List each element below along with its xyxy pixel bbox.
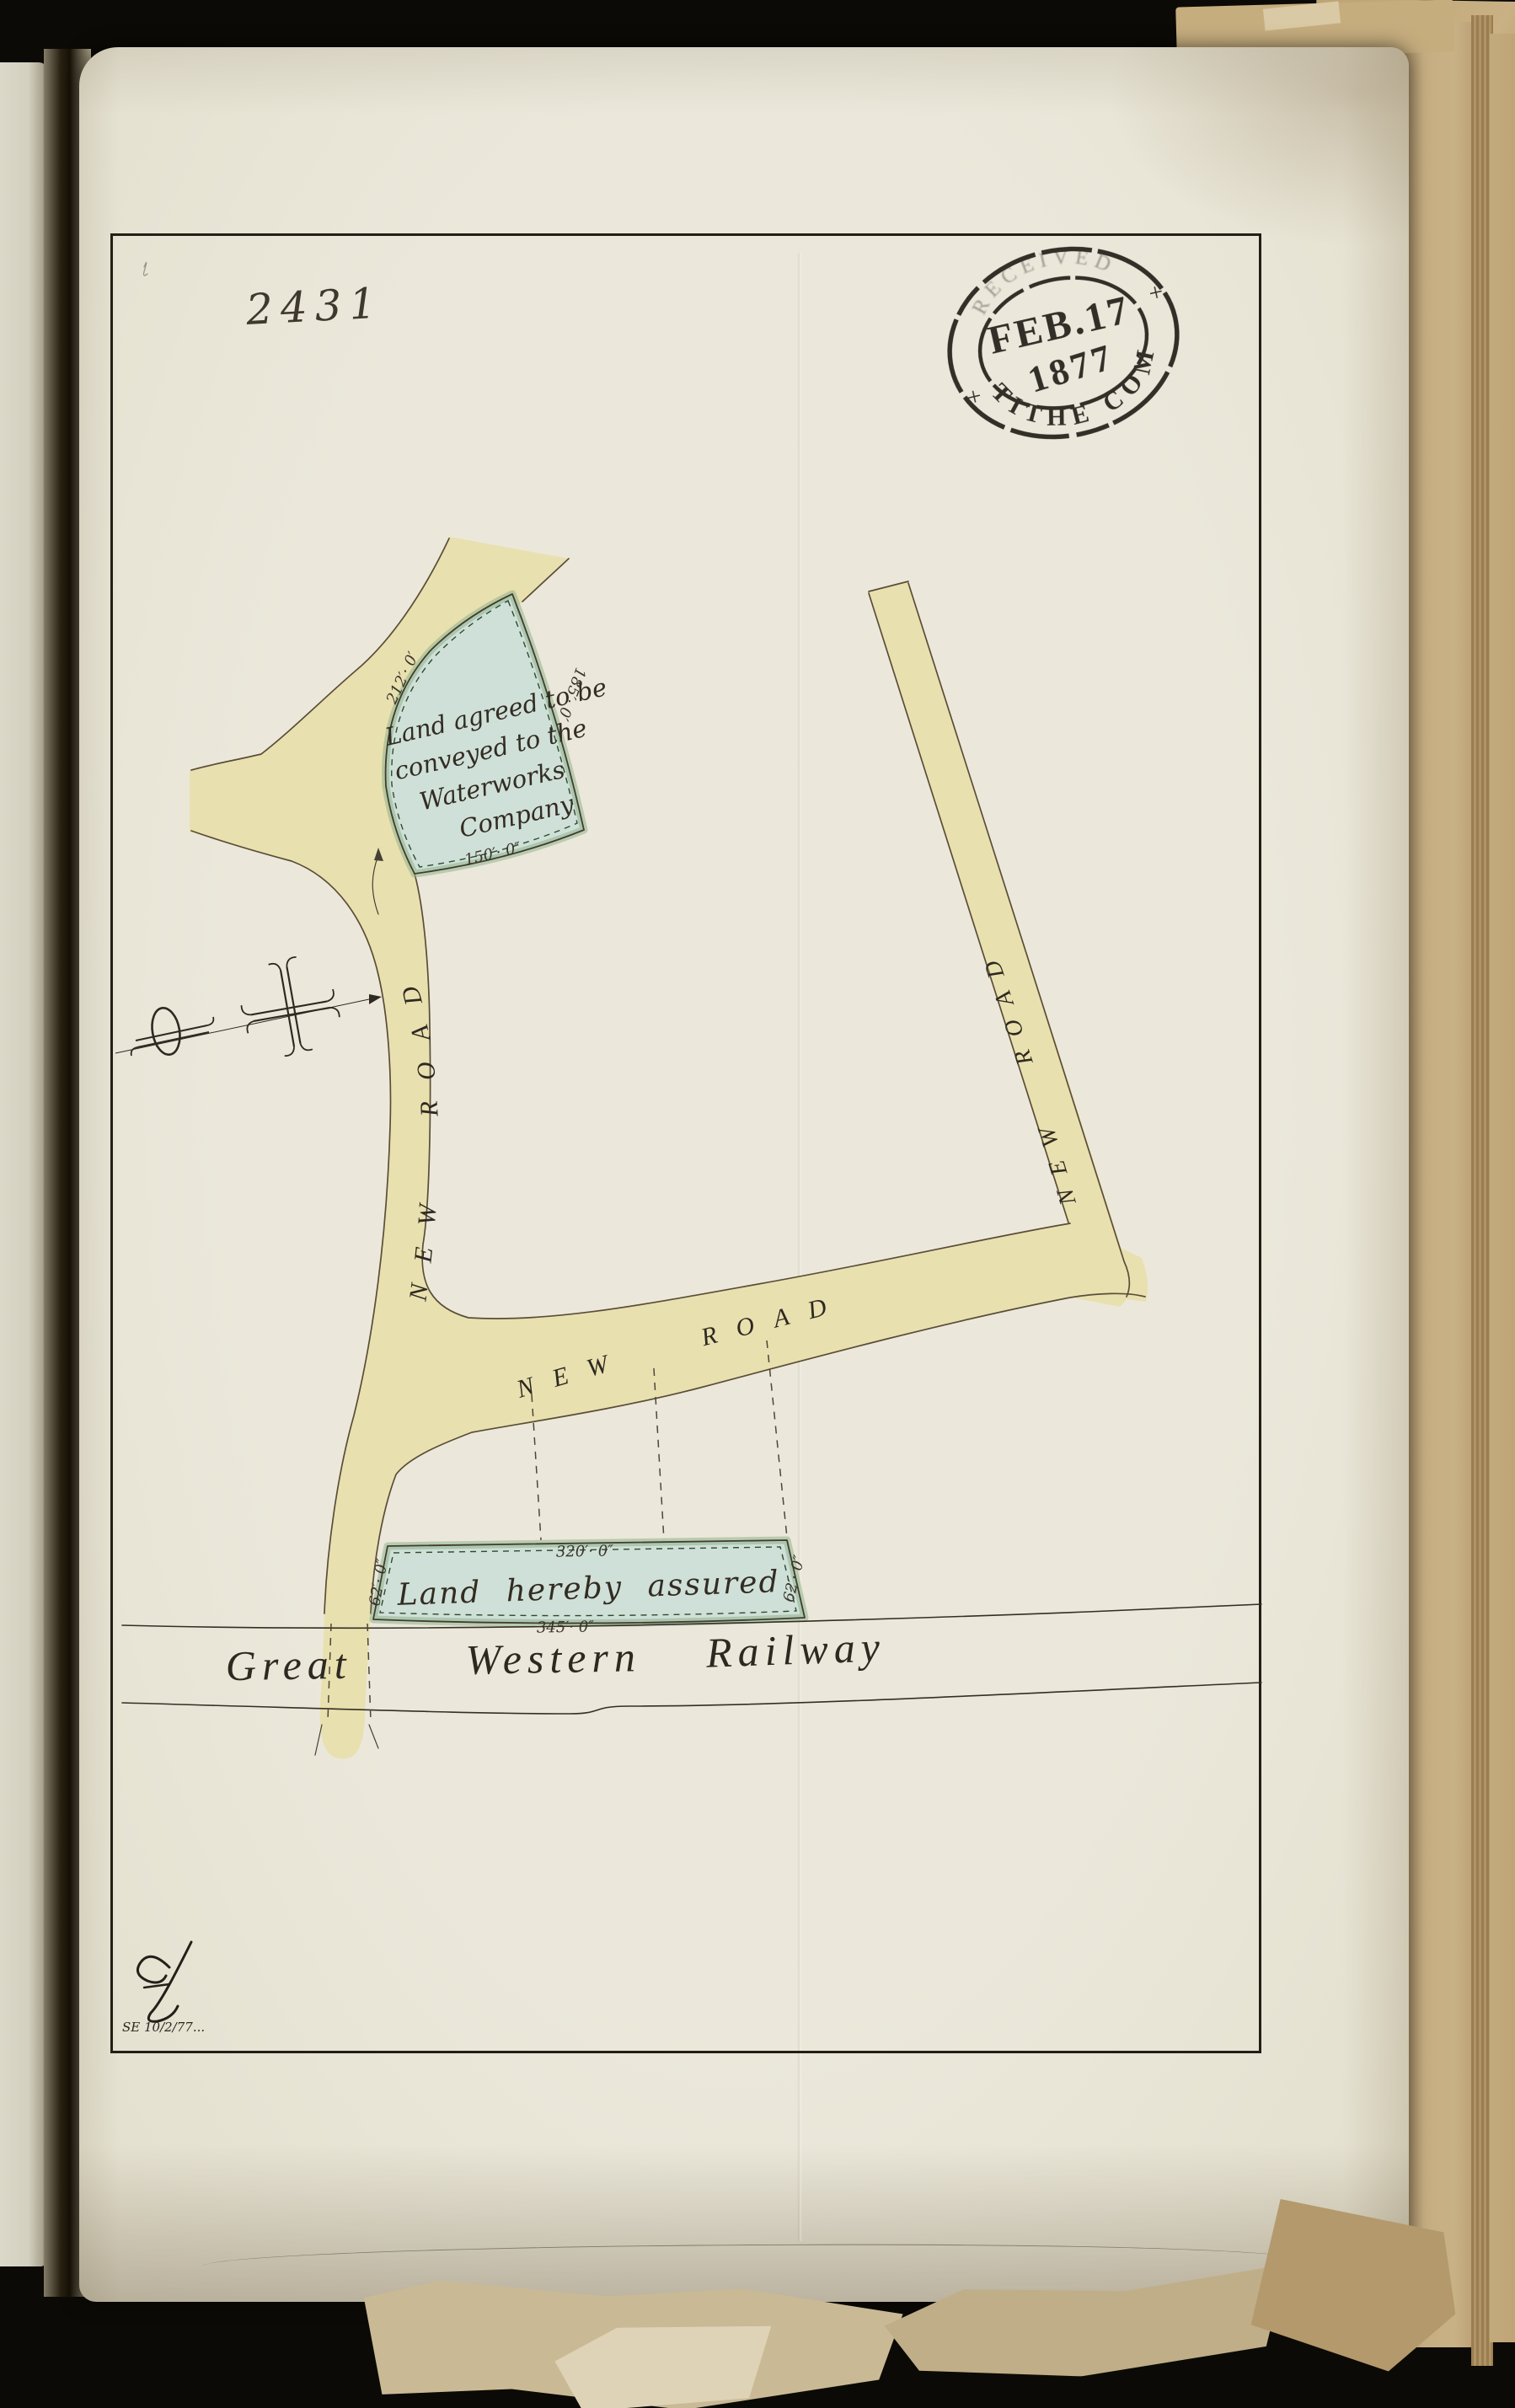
stamp-plus-left: +: [964, 382, 984, 412]
compass-indicator: [115, 951, 382, 1062]
compass-arrow-head: [369, 994, 382, 1004]
stamp-plus-right: +: [1146, 277, 1166, 308]
railway-word-great: Great: [225, 1640, 352, 1690]
tithe-commission-stamp: RECEIVED FEB.17 1877 TITHE COM + +: [930, 223, 1196, 459]
page-stack-edge-outer: [1490, 34, 1515, 2342]
dim-320: 320′· 0″: [556, 1542, 614, 1560]
railway-word-railway: Railway: [704, 1623, 886, 1676]
book-scan: Land agreed to be conveyed to the Waterw…: [0, 0, 1515, 2408]
plan-number: 2431: [244, 279, 385, 335]
opposite-page-edge: [0, 62, 47, 2266]
page-stack-edge: [1400, 22, 1478, 2347]
plan-drawing: Land agreed to be conveyed to the Waterw…: [110, 233, 1261, 2053]
examiner-signature: [137, 1942, 191, 2021]
corner-mark: [144, 262, 147, 276]
compass-cross: [234, 951, 345, 1062]
railway-word-western: Western: [465, 1633, 641, 1683]
date-annotation: SE 10/2/77...: [122, 2020, 205, 2035]
